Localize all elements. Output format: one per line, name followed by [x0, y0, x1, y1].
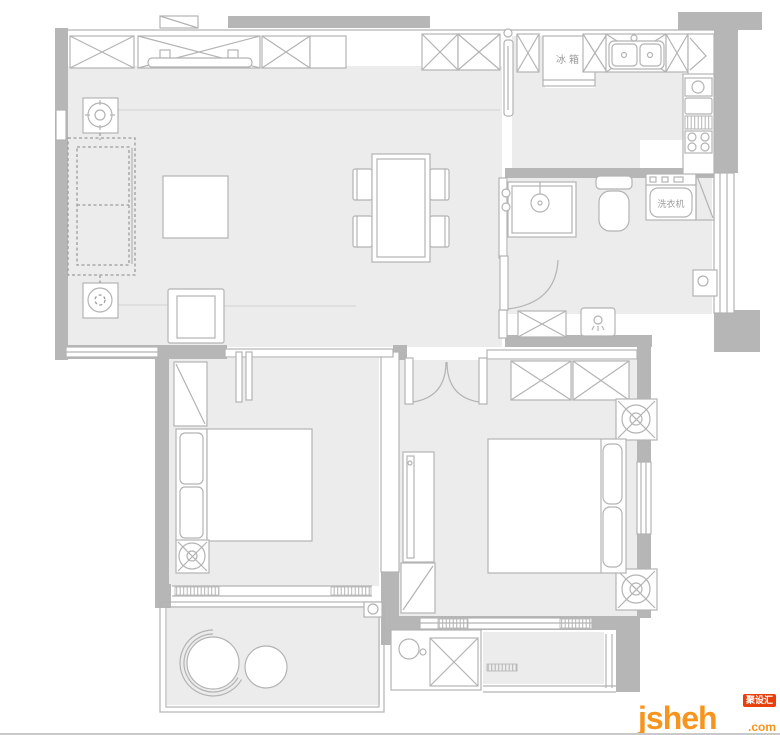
- entry-door: [504, 29, 513, 116]
- master-side-window: [637, 462, 651, 534]
- chair-icon: [430, 216, 449, 247]
- cabinet-icon: [518, 311, 566, 337]
- cabinet-icon: [430, 638, 478, 686]
- cabinet-icon: [262, 36, 310, 68]
- window-hatch: [487, 664, 517, 671]
- bedroom1-bottom-window: [172, 586, 372, 596]
- coffee-table-icon: [163, 176, 228, 238]
- wardrobe-icon: [511, 361, 629, 400]
- tv-cabinet-icon: [138, 36, 260, 68]
- stove-unit-icon: [683, 74, 714, 175]
- vanity-icon: [502, 182, 576, 237]
- cabinet-icon: [666, 34, 688, 72]
- cabinet-icon: [458, 34, 500, 70]
- wall-bracket-icon: [56, 110, 66, 140]
- side-table-icon: [245, 646, 287, 688]
- living-room-window: [66, 347, 158, 357]
- wardrobe-icon: [174, 362, 207, 426]
- chair-icon: [353, 216, 372, 247]
- chair-icon: [353, 169, 372, 200]
- bed-icon: [176, 429, 312, 541]
- fan-coil-icon: [616, 569, 657, 610]
- dresser-icon: [403, 452, 434, 562]
- cabinet-icon: [583, 34, 607, 72]
- fan-coil-icon: [616, 399, 657, 440]
- cabinet-icon: [422, 34, 458, 70]
- watermark-badge: 聚设汇: [743, 694, 776, 707]
- bed-icon: [488, 439, 626, 573]
- washing-machine-icon: 洗衣机: [646, 174, 696, 220]
- fridge-label: 冰箱: [556, 53, 582, 66]
- toilet-icon: [596, 176, 632, 231]
- ac-outdoor-unit-icon: [160, 16, 198, 28]
- watermark-brand: jsheh: [638, 700, 717, 735]
- chair-icon: [430, 169, 449, 200]
- cabinet-icon: [70, 36, 134, 68]
- bedrooms-party-wall: [381, 352, 399, 572]
- balcony2-floor: [483, 632, 604, 684]
- site-watermark: jsheh 聚设汇 .com: [638, 693, 776, 733]
- floor-drain-icon: [364, 602, 382, 617]
- floor-plan-drawing: 冰箱: [0, 0, 780, 735]
- master-bottom-window: [420, 618, 592, 629]
- fan-coil-icon: [176, 540, 209, 573]
- cabinet-icon: [517, 34, 539, 72]
- mop-basin-icon: [581, 308, 615, 336]
- washing-machine-label: 洗衣机: [657, 198, 684, 209]
- floor-plan-page: 冰箱: [0, 0, 780, 735]
- corner-counter-icon: [688, 34, 714, 75]
- kitchen-sink-icon: [606, 34, 666, 72]
- watermark-suffix: .com: [748, 720, 776, 734]
- shelf-icon: [310, 36, 346, 68]
- dining-table-icon: [372, 154, 430, 262]
- armchair-icon: [168, 289, 224, 343]
- wardrobe-icon: [401, 563, 435, 613]
- floor-drain-icon: [693, 270, 717, 296]
